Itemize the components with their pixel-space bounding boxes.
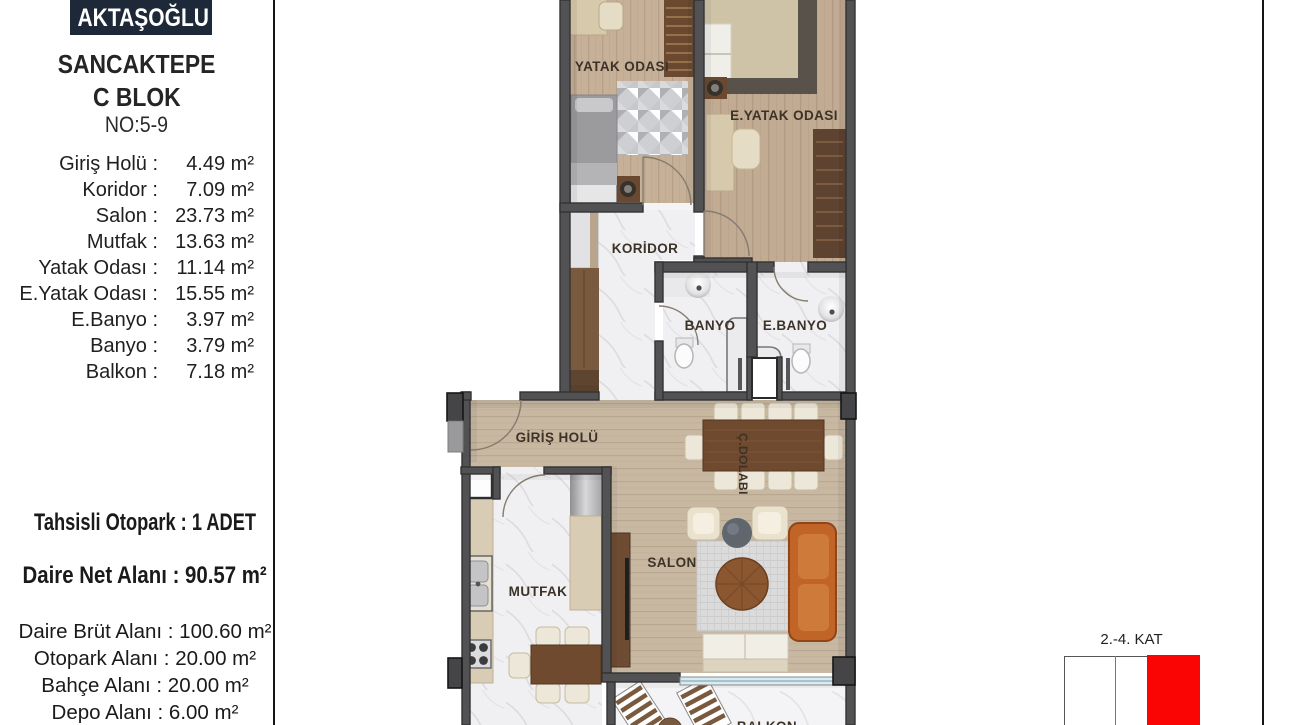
svg-text:KORİDOR: KORİDOR: [612, 241, 679, 256]
svg-text:E.BANYO: E.BANYO: [763, 318, 827, 333]
svg-text:MUTFAK: MUTFAK: [509, 584, 568, 599]
svg-text:BALKON: BALKON: [737, 719, 797, 725]
svg-text:GİRİŞ HOLÜ: GİRİŞ HOLÜ: [516, 430, 599, 445]
svg-text:SALON: SALON: [647, 555, 696, 570]
svg-text:Ç.DOLABI: Ç.DOLABI: [736, 433, 750, 495]
svg-text:BANYO: BANYO: [685, 318, 736, 333]
svg-text:YATAK ODASI: YATAK ODASI: [575, 59, 669, 74]
svg-text:E.YATAK ODASI: E.YATAK ODASI: [730, 108, 838, 123]
